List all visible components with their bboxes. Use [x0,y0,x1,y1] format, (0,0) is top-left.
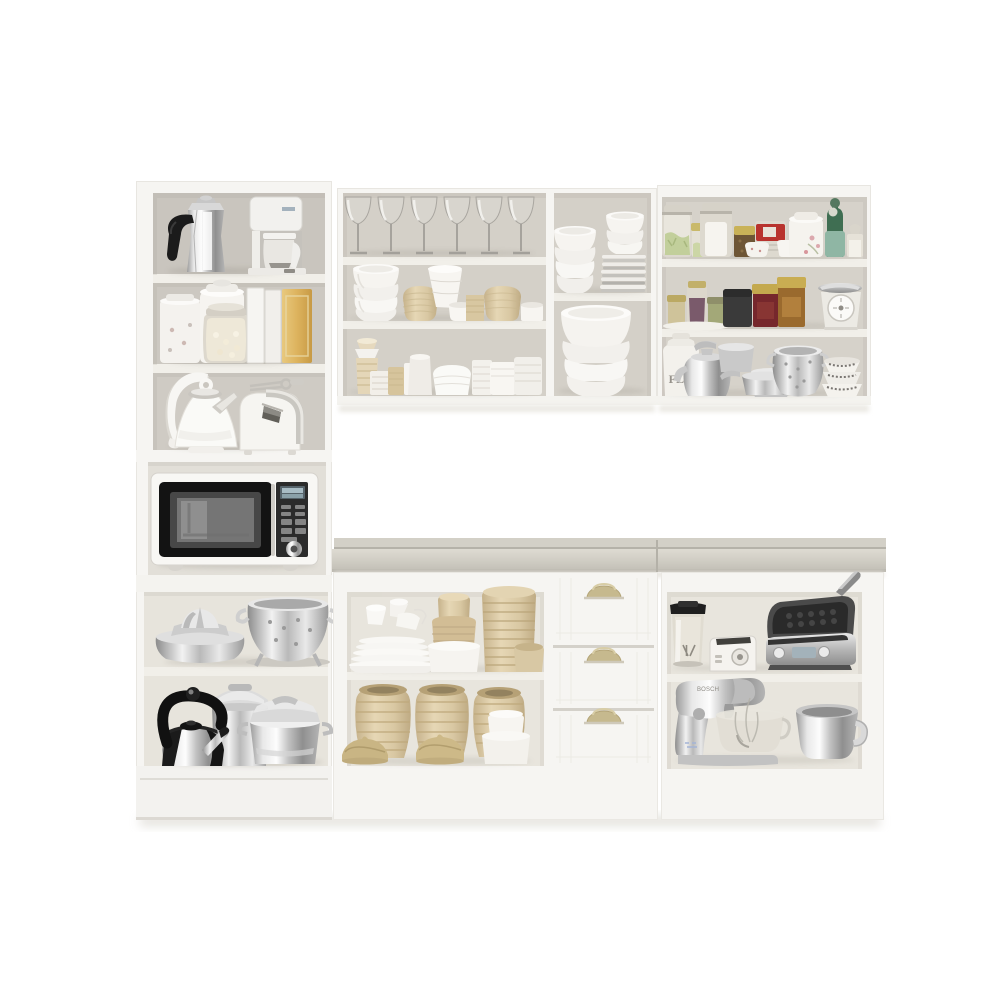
svg-text:BOSCH: BOSCH [697,687,719,693]
